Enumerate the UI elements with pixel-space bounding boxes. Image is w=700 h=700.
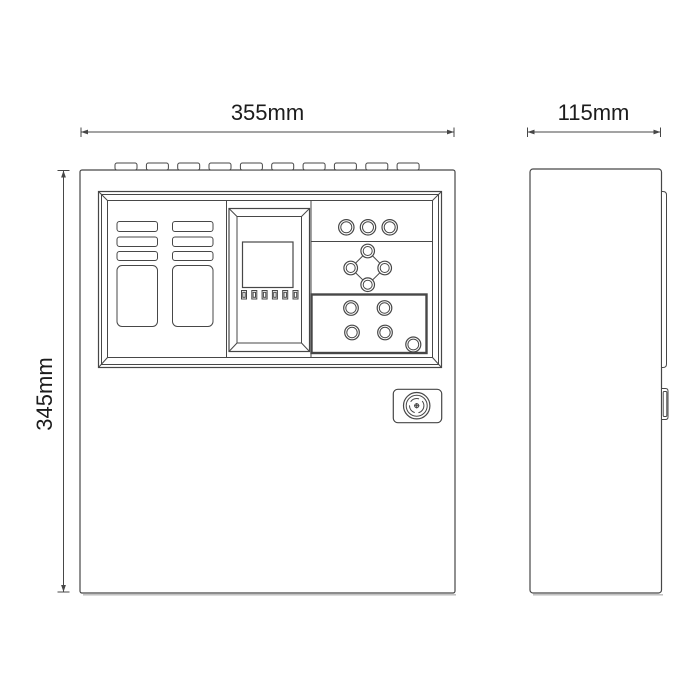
panel-dimension-drawing: 355mm 115mm 345mm: [0, 0, 700, 700]
dim-label-depth: 115mm: [558, 100, 630, 125]
vent-tab: [334, 163, 356, 170]
dim-front-height: 345mm: [32, 171, 70, 593]
arrow-up-icon: [61, 171, 66, 178]
technical-drawing-canvas: 355mm 115mm 345mm: [0, 0, 700, 700]
dim-label-height: 345mm: [32, 357, 57, 430]
cabinet-body: [80, 170, 455, 593]
led-slat: [117, 252, 158, 261]
vent-tab: [397, 163, 419, 170]
vent-tab: [240, 163, 262, 170]
led-slat: [117, 222, 158, 232]
door-edge: [662, 192, 667, 368]
dim-side-depth: 115mm: [528, 100, 661, 137]
vent-tab: [272, 163, 294, 170]
arrow-down-icon: [61, 585, 66, 592]
vent-tab: [209, 163, 231, 170]
led-slat: [173, 222, 214, 232]
side-body: [530, 169, 662, 593]
arrow-right-icon: [654, 130, 661, 135]
key-switch: [393, 389, 441, 422]
vent-tab: [146, 163, 168, 170]
arrow-right-icon: [447, 130, 454, 135]
vent-tab: [303, 163, 325, 170]
led-slat: [117, 237, 158, 247]
zone-label-window: [173, 266, 214, 327]
led-slat: [173, 237, 214, 247]
arrow-left-icon: [528, 130, 535, 135]
vent-tab: [115, 163, 137, 170]
top-vent-tabs: [115, 163, 419, 170]
arrow-left-icon: [81, 130, 88, 135]
side-view: [530, 169, 668, 595]
vent-tab: [366, 163, 388, 170]
led-slat: [173, 252, 214, 261]
indicator-led-row: [339, 220, 398, 235]
dim-label-width: 355mm: [231, 100, 304, 125]
vent-tab: [178, 163, 200, 170]
dim-front-width: 355mm: [81, 100, 454, 137]
front-view: [80, 163, 456, 595]
zone-label-window: [117, 266, 158, 327]
